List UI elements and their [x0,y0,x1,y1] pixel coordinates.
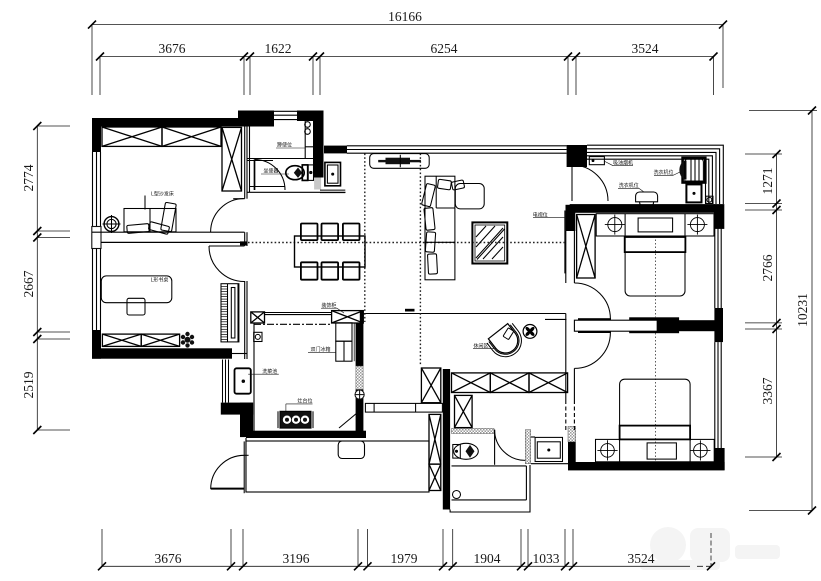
svg-text:L形书桌: L形书桌 [151,277,169,284]
svg-text:洗衣机位: 洗衣机位 [653,169,673,176]
svg-text:洗衣机位: 洗衣机位 [619,182,639,189]
svg-text:双门冰箱: 双门冰箱 [310,346,330,353]
svg-text:16166: 16166 [388,9,422,24]
svg-text:3367: 3367 [760,377,775,404]
svg-text:3524: 3524 [632,41,659,56]
svg-text:坐便器: 坐便器 [263,168,278,175]
svg-text:休闲区: 休闲区 [473,342,488,349]
svg-text:3196: 3196 [283,551,310,566]
svg-text:1979: 1979 [391,551,418,566]
svg-text:吸油烟机: 吸油烟机 [613,159,633,166]
svg-text:2519: 2519 [21,371,36,398]
svg-text:3524: 3524 [628,551,655,566]
svg-text:2667: 2667 [21,270,36,297]
svg-text:2774: 2774 [21,164,36,191]
svg-text:3676: 3676 [155,551,182,566]
svg-text:L型沙发床: L型沙发床 [151,191,174,198]
svg-text:2766: 2766 [760,254,775,281]
svg-text:电视位: 电视位 [533,211,548,218]
svg-text:灶台位: 灶台位 [297,397,312,404]
svg-text:洗菜池: 洗菜池 [262,368,277,375]
svg-text:6254: 6254 [431,41,458,56]
svg-text:10231: 10231 [795,293,810,327]
svg-text:1271: 1271 [760,168,775,195]
svg-text:蹲便位: 蹲便位 [277,142,292,149]
svg-text:3676: 3676 [159,41,186,56]
svg-text:1033: 1033 [533,551,560,566]
svg-text:1622: 1622 [265,41,292,56]
svg-text:1904: 1904 [474,551,501,566]
